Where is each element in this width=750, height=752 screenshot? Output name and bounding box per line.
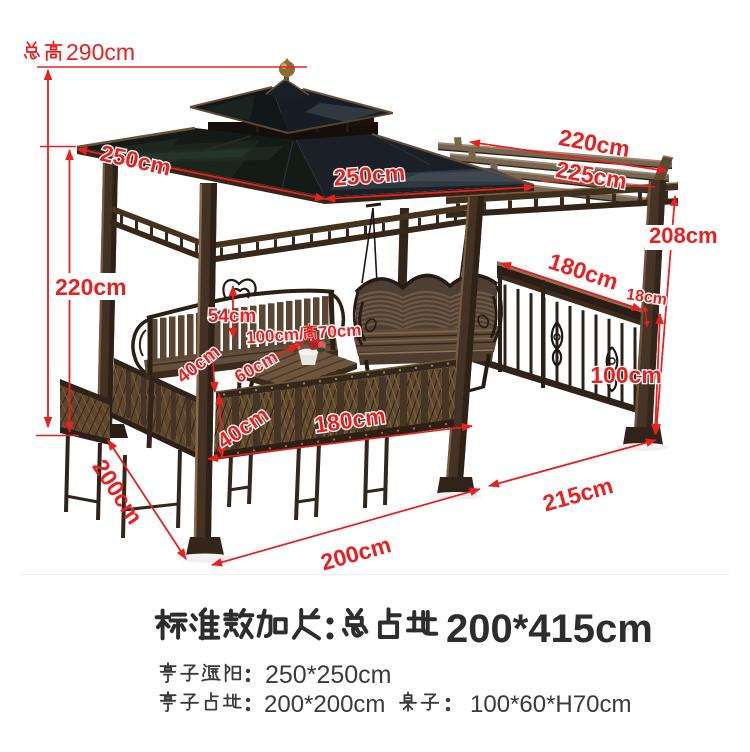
svg-text:100*60*H70cm: 100*60*H70cm <box>470 691 631 718</box>
svg-text:250*250cm: 250*250cm <box>265 661 391 689</box>
svg-text:290cm: 290cm <box>66 39 135 65</box>
svg-text:208cm: 208cm <box>649 223 718 248</box>
svg-text:200*415cm: 200*415cm <box>446 607 653 651</box>
svg-text:70cm: 70cm <box>317 320 362 342</box>
svg-text:100cm: 100cm <box>590 362 662 388</box>
svg-text:220cm: 220cm <box>55 274 127 300</box>
svg-text:54cm: 54cm <box>208 306 257 327</box>
svg-text:100cm/: 100cm/ <box>245 324 304 347</box>
svg-text:200*200cm: 200*200cm <box>264 691 385 718</box>
